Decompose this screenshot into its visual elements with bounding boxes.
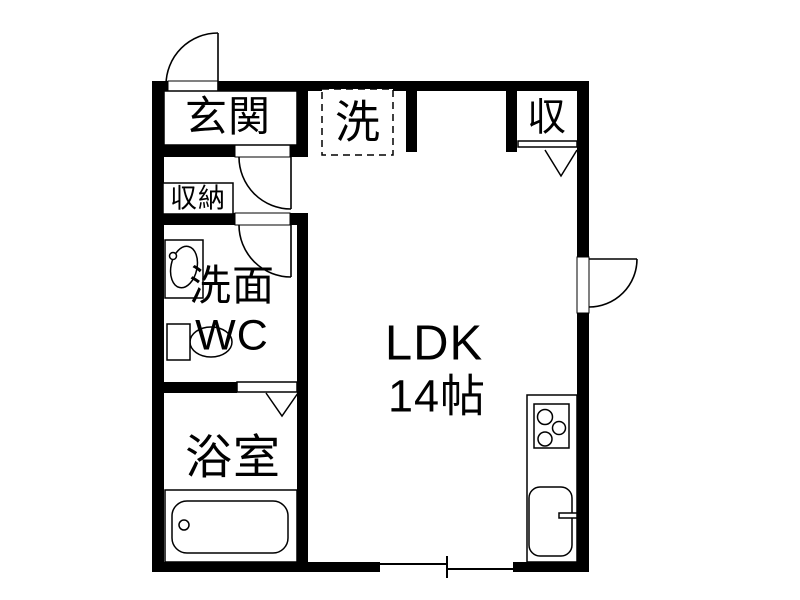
wall-hall-bottom xyxy=(152,213,235,225)
washroom-label-line2: WC xyxy=(195,315,269,358)
hall-door-opening xyxy=(235,145,290,157)
washroom-door-opening xyxy=(235,213,290,225)
wall-bottom-right xyxy=(513,562,589,572)
stove-icon xyxy=(534,404,569,448)
wall-laundry-side xyxy=(406,91,417,152)
wall-right-lower xyxy=(577,313,589,572)
hall-door-swing-icon xyxy=(239,157,291,209)
closet-folding-door-icon xyxy=(518,141,577,176)
storage-upper-label: 収 xyxy=(527,99,567,138)
stove-burner-3 xyxy=(538,432,552,446)
genkan-label: 玄関 xyxy=(185,96,271,138)
stove-burner-2 xyxy=(553,422,566,435)
floorplan-drawing xyxy=(0,0,800,600)
washroom-label-line1: 洗面 xyxy=(189,265,275,307)
floorplan-canvas: 玄関 洗 収 収納 洗面 WC LDK 14帖 浴室 xyxy=(0,0,800,600)
sink-faucet xyxy=(559,513,577,518)
hall-door-arc xyxy=(239,157,291,209)
wall-hall-bottom-jamb xyxy=(290,213,308,225)
kitchen-sink-icon xyxy=(529,487,577,556)
bathtub-drain xyxy=(179,520,189,530)
stove-burner-1 xyxy=(538,410,553,425)
bath-folding-door-icon xyxy=(237,382,298,416)
wall-hall-top-jamb xyxy=(290,145,308,157)
ldk-label-line2: 14帖 xyxy=(388,374,486,419)
wall-top-main xyxy=(218,81,589,91)
bath-door-line xyxy=(237,382,297,392)
bathroom-label: 浴室 xyxy=(185,434,281,481)
bathtub-icon xyxy=(165,490,297,562)
closet-door-v xyxy=(545,150,577,176)
laundry-label: 洗 xyxy=(335,100,381,145)
entry-door-arc xyxy=(166,33,218,85)
ldk-door-opening xyxy=(577,257,589,313)
storage-hall-label: 収納 xyxy=(170,186,226,213)
ldk-door-swing-icon xyxy=(589,259,637,307)
wall-inner-vertical-lower xyxy=(297,213,308,562)
bathtub-tub xyxy=(172,501,288,553)
washbasin-faucet xyxy=(170,253,177,260)
wall-hall-top xyxy=(152,145,235,157)
bath-door-v xyxy=(266,393,298,416)
toilet-tank xyxy=(167,324,190,360)
sink-basin xyxy=(529,487,572,556)
wall-bottom-left xyxy=(152,562,380,572)
wall-closet-side xyxy=(506,91,517,152)
wall-bath-divider xyxy=(152,382,237,393)
entry-door-opening xyxy=(168,81,218,91)
ldk-door-arc xyxy=(589,259,637,307)
closet-front-line xyxy=(518,141,577,147)
ldk-label-line1: LDK xyxy=(385,320,483,369)
wall-right-upper xyxy=(577,81,589,257)
